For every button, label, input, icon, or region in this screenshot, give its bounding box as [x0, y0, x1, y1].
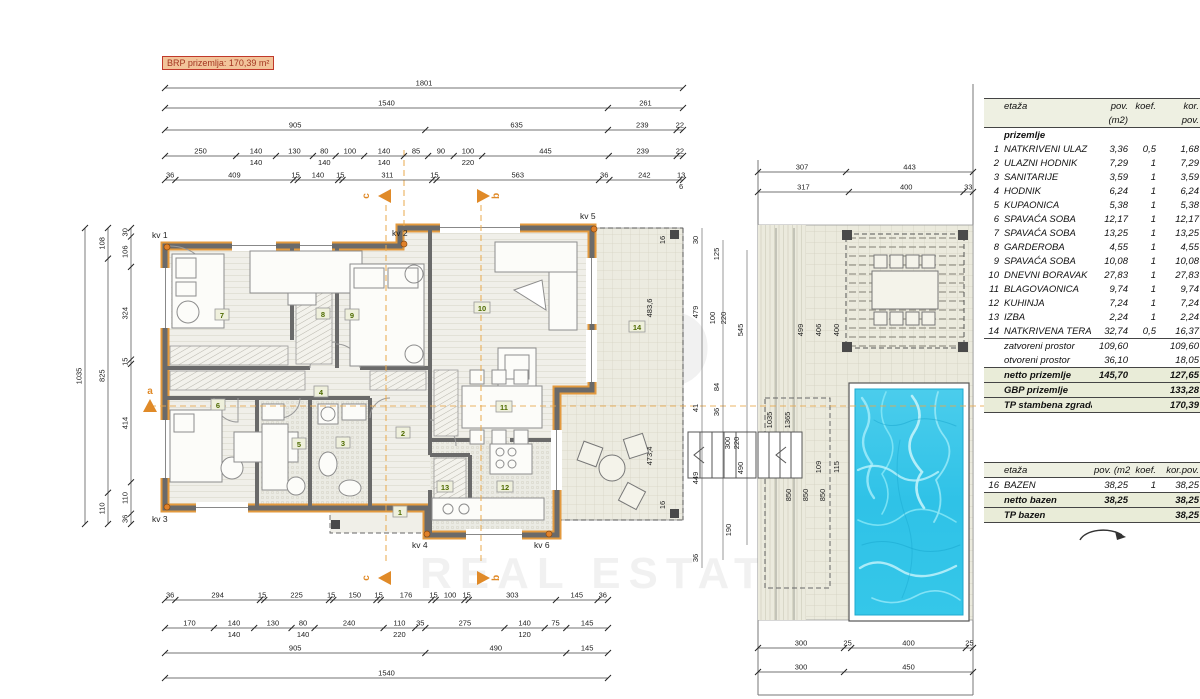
- svg-text:1365: 1365: [783, 412, 792, 429]
- svg-text:140: 140: [378, 147, 391, 156]
- dim-chain: 300450: [755, 663, 976, 676]
- pergola: [842, 230, 968, 352]
- svg-text:1035: 1035: [75, 368, 84, 385]
- svg-text:12: 12: [501, 483, 509, 492]
- svg-text:35: 35: [416, 619, 424, 628]
- svg-text:30: 30: [121, 228, 130, 236]
- svg-text:100: 100: [708, 312, 717, 325]
- svg-text:176: 176: [400, 591, 413, 600]
- svg-text:106: 106: [121, 245, 130, 258]
- svg-text:110: 110: [98, 502, 107, 514]
- patio-area: [758, 84, 973, 695]
- svg-text:400: 400: [900, 183, 913, 192]
- dim-chain: 301063241541411036: [121, 225, 135, 527]
- terrace-post: [670, 509, 679, 518]
- svg-text:406: 406: [814, 324, 823, 337]
- svg-text:905: 905: [289, 121, 302, 130]
- svg-text:5: 5: [297, 440, 301, 449]
- svg-text:450: 450: [902, 663, 915, 672]
- svg-text:kv 3: kv 3: [152, 514, 168, 524]
- table-row: 6SPAVAĆA SOBA12,17112,17: [984, 212, 1200, 226]
- dim-chain: 1701401401308014024011022035275140120751…: [162, 619, 611, 640]
- svg-text:449: 449: [691, 472, 700, 485]
- svg-text:36: 36: [712, 408, 721, 416]
- svg-text:30: 30: [691, 236, 700, 244]
- dim-chain: 1540261: [162, 99, 686, 112]
- svg-text:33: 33: [964, 183, 972, 192]
- dim-chain: 3002540025: [755, 639, 976, 652]
- svg-text:145: 145: [581, 644, 594, 653]
- svg-text:2: 2: [401, 429, 405, 438]
- table-row: 1NATKRIVENI ULAZ3,360,51,68: [984, 142, 1200, 156]
- svg-text:22: 22: [676, 121, 684, 130]
- svg-text:563: 563: [512, 171, 525, 180]
- svg-text:294: 294: [211, 591, 224, 600]
- svg-text:6: 6: [679, 182, 683, 191]
- svg-text:1035: 1035: [765, 412, 774, 429]
- svg-text:225: 225: [290, 591, 303, 600]
- svg-text:c: c: [361, 193, 372, 199]
- svg-text:36: 36: [599, 591, 607, 600]
- table-row: zatvoreni prostor109,60109,60: [984, 339, 1200, 354]
- svg-text:300: 300: [795, 639, 808, 648]
- svg-text:220: 220: [393, 630, 406, 639]
- svg-text:7: 7: [220, 311, 224, 320]
- svg-text:499: 499: [796, 324, 805, 337]
- table-row: 14NATKRIVENA TERASA32,740,516,37: [984, 324, 1200, 339]
- section-marker-c-top: c: [361, 189, 391, 203]
- svg-text:36: 36: [600, 171, 608, 180]
- dim-chain: 1540: [162, 669, 611, 682]
- table-row: 4HODNIK6,2416,24: [984, 184, 1200, 198]
- svg-text:145: 145: [581, 619, 594, 628]
- table-row: 2ULAZNI HODNIK7,2917,29: [984, 156, 1200, 170]
- svg-text:1801: 1801: [416, 79, 433, 88]
- dim-chain: 2501401401308014010014014085901002204452…: [162, 147, 686, 168]
- svg-text:10: 10: [478, 304, 486, 313]
- svg-text:15: 15: [121, 358, 130, 366]
- table-row: etažapov. (m2)koef.kor.pov.: [984, 463, 1200, 478]
- svg-text:15: 15: [462, 591, 470, 600]
- svg-text:100: 100: [444, 591, 457, 600]
- svg-text:140: 140: [378, 158, 391, 167]
- dim-chain: 108825110: [98, 225, 112, 527]
- svg-text:3: 3: [341, 439, 345, 448]
- table-row: 10DNEVNI BORAVAK27,83127,83: [984, 268, 1200, 282]
- svg-text:15: 15: [430, 171, 438, 180]
- svg-text:220: 220: [462, 158, 475, 167]
- svg-text:250: 250: [194, 147, 207, 156]
- pergola-post: [842, 230, 852, 240]
- svg-text:125: 125: [712, 248, 721, 261]
- svg-text:80: 80: [299, 619, 307, 628]
- stairs: [688, 432, 802, 478]
- svg-text:kv 1: kv 1: [152, 230, 168, 240]
- dim-chain: 307443: [755, 163, 976, 176]
- svg-text:317: 317: [797, 183, 810, 192]
- svg-text:324: 324: [121, 307, 130, 320]
- svg-text:36: 36: [691, 554, 700, 562]
- svg-text:110: 110: [393, 619, 405, 628]
- svg-text:b: b: [491, 193, 502, 199]
- pergola-post: [958, 342, 968, 352]
- svg-text:239: 239: [636, 121, 649, 130]
- svg-text:150: 150: [349, 591, 362, 600]
- svg-text:15: 15: [374, 591, 382, 600]
- pool: [849, 383, 969, 621]
- svg-text:220: 220: [732, 437, 741, 450]
- svg-text:140: 140: [250, 147, 263, 156]
- svg-text:490: 490: [490, 644, 503, 653]
- svg-text:239: 239: [636, 147, 649, 156]
- area-table-pool: etažapov. (m2)koef.kor.pov.16BAZEN38,251…: [984, 462, 1200, 523]
- svg-text:545: 545: [736, 324, 745, 337]
- svg-text:9: 9: [350, 311, 354, 320]
- svg-text:15: 15: [327, 591, 335, 600]
- svg-text:483,6: 483,6: [645, 299, 654, 318]
- svg-text:110: 110: [121, 492, 130, 504]
- svg-text:307: 307: [796, 163, 809, 172]
- brp-area-label: BRP prizemlja: 170,39 m²: [162, 56, 274, 70]
- table-row: 12KUHINJA7,2417,24: [984, 296, 1200, 310]
- svg-text:400: 400: [902, 639, 915, 648]
- section-marker-b-top: b: [477, 189, 502, 203]
- svg-text:635: 635: [510, 121, 523, 130]
- svg-text:275: 275: [459, 619, 472, 628]
- svg-text:140: 140: [297, 630, 310, 639]
- svg-text:300: 300: [795, 663, 808, 672]
- dim-chain: 3640915140153111556336242136: [162, 171, 686, 192]
- dim-chain: 1801: [162, 79, 686, 92]
- svg-text:16: 16: [658, 501, 667, 509]
- svg-text:1: 1: [398, 508, 402, 517]
- svg-text:25: 25: [965, 639, 973, 648]
- svg-text:84: 84: [712, 383, 721, 391]
- table-row: otvoreni prostor36,1018,05: [984, 353, 1200, 368]
- svg-text:100: 100: [344, 147, 357, 156]
- house: [160, 222, 597, 540]
- table-row: netto prizemlje145,70127,65: [984, 368, 1200, 383]
- svg-text:16: 16: [658, 236, 667, 244]
- table-row: 13IZBA2,2412,24: [984, 310, 1200, 324]
- svg-text:kv 5: kv 5: [580, 211, 596, 221]
- table-row: (m2)pov.: [984, 113, 1200, 128]
- svg-text:11: 11: [500, 403, 508, 412]
- svg-text:409: 409: [228, 171, 241, 180]
- table-row: TP stambena zgrada170,39: [984, 398, 1200, 413]
- svg-text:473,4: 473,4: [645, 447, 654, 466]
- svg-text:1540: 1540: [378, 99, 395, 108]
- terrace-post: [670, 230, 679, 239]
- svg-text:242: 242: [638, 171, 651, 180]
- svg-text:80: 80: [320, 147, 328, 156]
- svg-text:1540: 1540: [378, 669, 395, 678]
- svg-text:kv 6: kv 6: [534, 540, 550, 550]
- svg-text:400: 400: [832, 324, 841, 337]
- svg-text:850: 850: [818, 489, 827, 502]
- svg-text:190: 190: [724, 524, 733, 537]
- svg-text:140: 140: [318, 158, 331, 167]
- svg-text:15: 15: [291, 171, 299, 180]
- dim-chain: 31740033: [755, 183, 976, 196]
- svg-text:13: 13: [677, 171, 685, 180]
- table-row: prizemlje: [984, 128, 1200, 143]
- table-row: GBP prizemlje133,28: [984, 383, 1200, 398]
- svg-text:170: 170: [183, 619, 196, 628]
- area-table-ground-floor: etažapov.koef.kor.(m2)pov.prizemlje1NATK…: [984, 98, 1200, 413]
- svg-text:140: 140: [518, 619, 531, 628]
- svg-text:75: 75: [551, 619, 559, 628]
- svg-text:479: 479: [691, 306, 700, 319]
- svg-text:825: 825: [98, 369, 107, 382]
- dim-chain: 90563523922: [162, 121, 686, 134]
- svg-text:311: 311: [381, 171, 393, 180]
- svg-text:261: 261: [639, 99, 652, 108]
- table-row: 9SPAVAĆA SOBA10,08110,08: [984, 254, 1200, 268]
- svg-text:140: 140: [312, 171, 325, 180]
- svg-text:15: 15: [429, 591, 437, 600]
- svg-text:36: 36: [166, 171, 174, 180]
- svg-text:120: 120: [518, 630, 531, 639]
- table-row: 7SPAVAĆA SOBA13,25113,25: [984, 226, 1200, 240]
- svg-text:130: 130: [288, 147, 301, 156]
- svg-text:445: 445: [539, 147, 552, 156]
- svg-text:100: 100: [462, 147, 475, 156]
- rotation-arrow-icon: [1080, 530, 1126, 540]
- dim-chain: 905490145: [162, 644, 611, 657]
- svg-text:a: a: [147, 386, 153, 397]
- svg-text:90: 90: [437, 147, 445, 156]
- floorplan-sheet: IST P REAL ESTATE: [0, 0, 1200, 699]
- svg-text:kv 4: kv 4: [412, 540, 428, 550]
- table-row: 11BLAGOVAONICA9,7419,74: [984, 282, 1200, 296]
- pergola-post: [958, 230, 968, 240]
- svg-text:109: 109: [814, 461, 823, 474]
- svg-text:15: 15: [336, 171, 344, 180]
- svg-text:443: 443: [903, 163, 916, 172]
- svg-text:85: 85: [412, 147, 420, 156]
- dim-chain: 1035: [75, 225, 89, 527]
- svg-text:145: 145: [571, 591, 584, 600]
- svg-text:140: 140: [228, 630, 241, 639]
- svg-text:240: 240: [343, 619, 356, 628]
- svg-text:b: b: [491, 575, 502, 581]
- table-row: 16BAZEN38,25138,25: [984, 478, 1200, 493]
- svg-text:kv 2: kv 2: [392, 228, 408, 238]
- svg-text:140: 140: [228, 619, 241, 628]
- svg-text:22: 22: [676, 147, 684, 156]
- svg-text:6: 6: [216, 401, 220, 410]
- svg-text:13: 13: [441, 483, 449, 492]
- svg-text:41: 41: [691, 404, 700, 412]
- table-row: TP bazen38,25: [984, 508, 1200, 523]
- svg-text:108: 108: [98, 237, 107, 250]
- svg-text:850: 850: [784, 489, 793, 502]
- svg-text:414: 414: [121, 417, 130, 430]
- svg-text:303: 303: [506, 591, 519, 600]
- svg-text:36: 36: [166, 591, 174, 600]
- svg-text:905: 905: [289, 644, 302, 653]
- table-row: 5KUPAONICA5,3815,38: [984, 198, 1200, 212]
- pergola-post: [842, 342, 852, 352]
- section-marker-a: a: [143, 386, 157, 412]
- svg-text:140: 140: [250, 158, 263, 167]
- svg-text:15: 15: [258, 591, 266, 600]
- svg-text:c: c: [361, 575, 372, 581]
- table-row: 3SANITARIJE3,5913,59: [984, 170, 1200, 184]
- section-marker-c-bottom: c: [361, 571, 391, 585]
- svg-text:115: 115: [832, 461, 841, 473]
- svg-text:300: 300: [723, 437, 732, 450]
- svg-text:490: 490: [736, 462, 745, 475]
- svg-text:8: 8: [321, 310, 325, 319]
- svg-text:220: 220: [719, 312, 728, 325]
- svg-text:25: 25: [843, 639, 851, 648]
- svg-text:850: 850: [801, 489, 810, 502]
- svg-text:130: 130: [267, 619, 280, 628]
- svg-text:36: 36: [121, 515, 130, 523]
- table-row: netto bazen38,2538,25: [984, 493, 1200, 508]
- svg-text:14: 14: [633, 323, 642, 332]
- table-row: 8GARDEROBA4,5514,55: [984, 240, 1200, 254]
- table-row: etažapov.koef.kor.: [984, 99, 1200, 114]
